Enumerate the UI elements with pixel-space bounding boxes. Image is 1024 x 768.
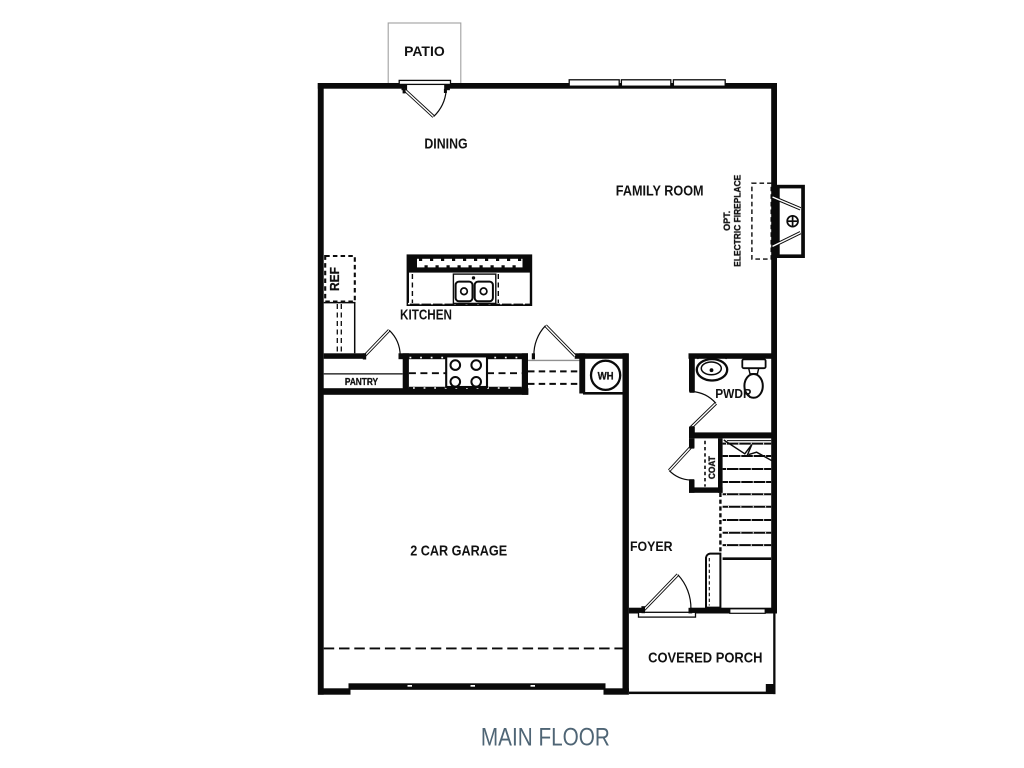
svg-text:ELECTRIC FIREPLACE: ELECTRIC FIREPLACE [733,175,744,267]
svg-text:WH: WH [598,370,614,382]
svg-text:PATIO: PATIO [404,43,445,59]
svg-text:MAIN FLOOR: MAIN FLOOR [481,724,610,752]
svg-text:OPT.: OPT. [722,211,733,231]
svg-text:FOYER: FOYER [630,538,673,554]
svg-text:KITCHEN: KITCHEN [400,307,452,324]
svg-text:PWDR: PWDR [715,386,752,401]
svg-text:FAMILY ROOM: FAMILY ROOM [616,183,704,200]
svg-text:REF: REF [327,267,342,291]
svg-text:COAT: COAT [707,456,718,479]
svg-text:COVERED PORCH: COVERED PORCH [648,650,762,667]
svg-text:PANTRY: PANTRY [345,376,378,388]
svg-text:2 CAR GARAGE: 2 CAR GARAGE [410,543,507,560]
svg-text:DINING: DINING [424,136,467,153]
